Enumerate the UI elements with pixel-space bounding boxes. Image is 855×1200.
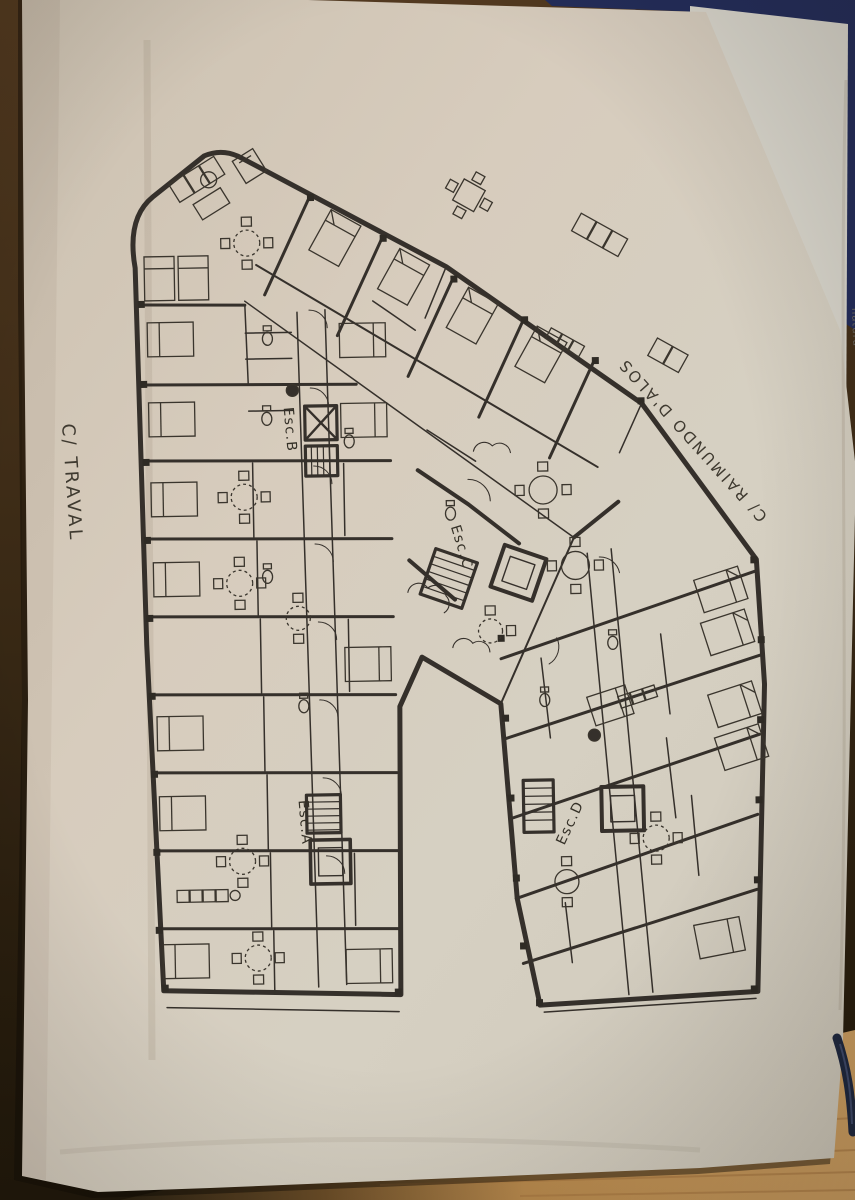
floorplan-photo: natura — [0, 0, 855, 1200]
photo-canvas: natura — [0, 0, 855, 1200]
